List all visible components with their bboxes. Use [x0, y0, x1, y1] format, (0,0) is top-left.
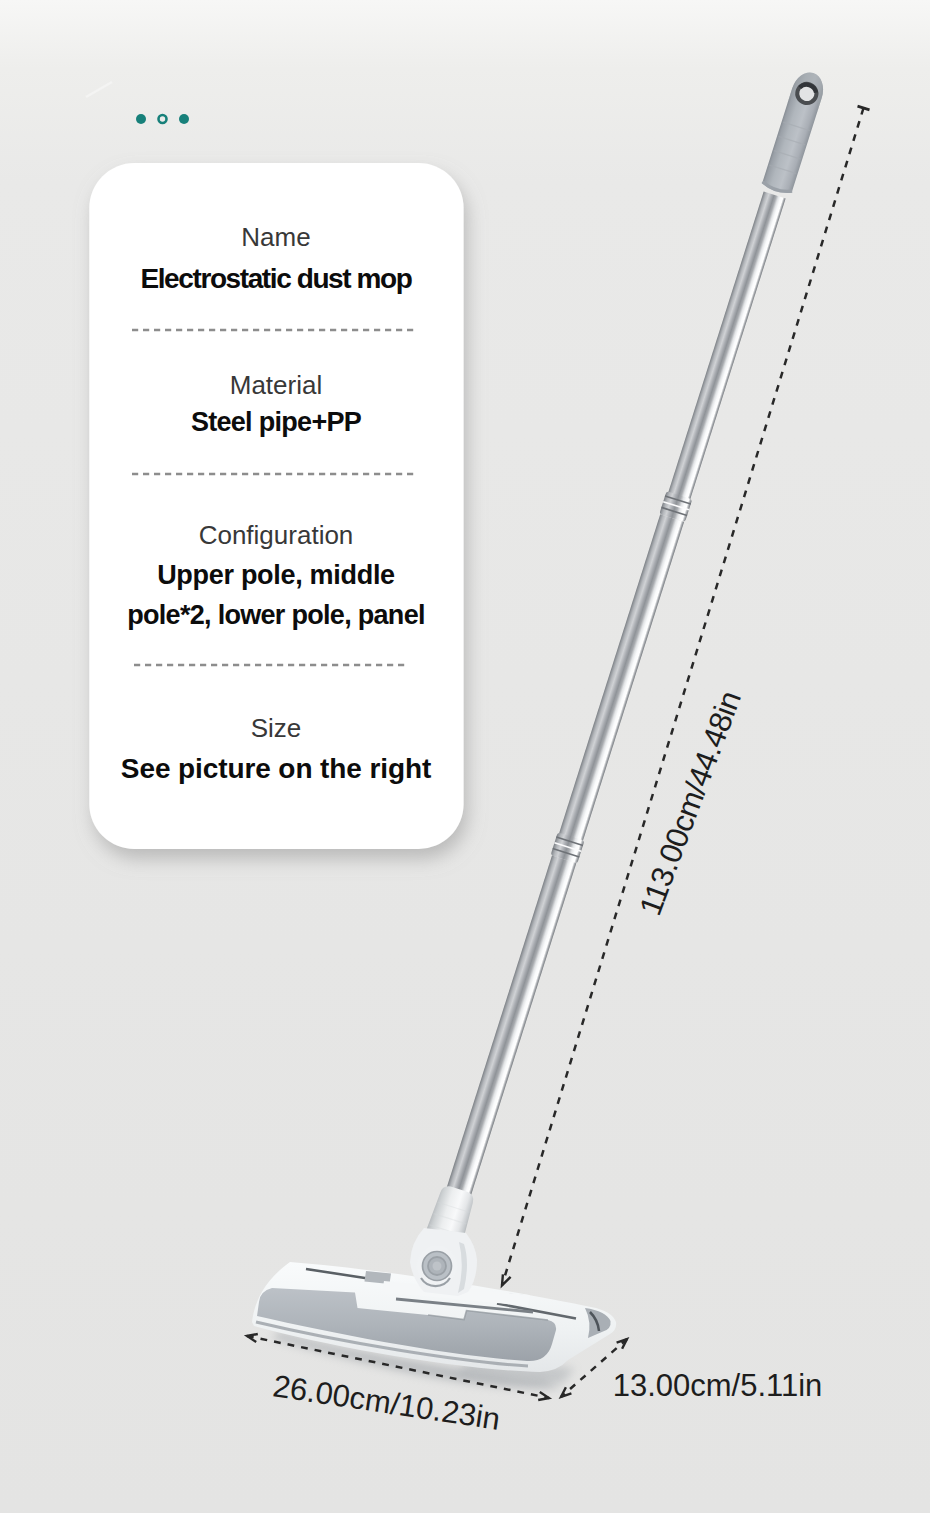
svg-text:Name: Name: [241, 222, 310, 252]
svg-text:13.00cm/5.11in: 13.00cm/5.11in: [613, 1368, 823, 1403]
svg-text:Upper pole, middle: Upper pole, middle: [157, 560, 395, 590]
svg-text:pole*2, lower pole, panel: pole*2, lower pole, panel: [127, 600, 425, 630]
svg-text:Configuration: Configuration: [199, 520, 354, 550]
svg-text:Steel pipe+PP: Steel pipe+PP: [191, 407, 362, 437]
svg-text:See picture on the right: See picture on the right: [121, 753, 431, 784]
svg-text:Size: Size: [251, 713, 302, 743]
svg-text:Electrostatic dust mop: Electrostatic dust mop: [140, 263, 411, 294]
svg-text:Material: Material: [230, 370, 322, 400]
